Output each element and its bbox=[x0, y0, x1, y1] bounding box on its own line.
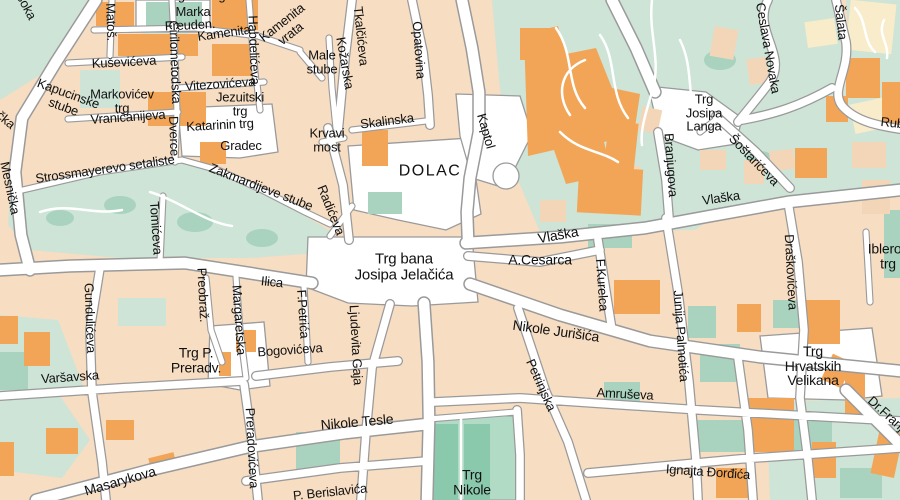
street-label: Kuševićeva bbox=[91, 54, 156, 71]
place-label: Trg Hrvatskih Velikana bbox=[785, 344, 842, 388]
street-label: Rubetićeva bbox=[880, 115, 900, 135]
street-label: Preradovićeva bbox=[243, 407, 261, 488]
street-label: Krvavi most bbox=[310, 126, 345, 153]
street-label: Varšavska bbox=[41, 368, 100, 386]
street-label: Masarykova bbox=[83, 464, 158, 498]
street-label: Opatovina bbox=[410, 21, 427, 79]
street-label: Mesnička bbox=[0, 161, 22, 216]
street-label: Ceslava Novaka bbox=[753, 2, 782, 95]
street-label: F.Petrića bbox=[295, 289, 312, 339]
street-label: Visoka bbox=[9, 0, 39, 22]
street-label: Ignajta Đorđića bbox=[665, 462, 750, 481]
street-label: F.Kurelca bbox=[593, 258, 610, 311]
street-label: Mletačka bbox=[0, 89, 18, 132]
street-label: Male stube bbox=[307, 48, 338, 75]
street-label: Amruševa bbox=[596, 386, 654, 402]
street-label: Vlaška bbox=[701, 189, 740, 208]
street-label: P. Berislavića bbox=[292, 481, 367, 500]
street-label: Skalinska bbox=[359, 111, 414, 131]
street-label: Zakmardijeve stube bbox=[207, 161, 314, 213]
street-label: Margaretska bbox=[230, 285, 248, 356]
street-label: Draškovićeva bbox=[782, 234, 799, 310]
place-label: Trg Josipa Langa bbox=[686, 93, 722, 134]
street-label: Matoš. bbox=[104, 3, 119, 41]
labels-layer: Trg svetogMarkaMatoš.Freuden.KamenitaKam… bbox=[0, 0, 900, 500]
street-label: Jezuitski trg bbox=[216, 90, 264, 117]
street-label: Ljudevita Gaja bbox=[347, 305, 365, 386]
place-label: Gradec bbox=[220, 139, 261, 153]
place-label: Trg svetog bbox=[167, 0, 226, 3]
street-label: Kožarska bbox=[334, 36, 356, 90]
street-label: Vlaška bbox=[537, 224, 580, 245]
street-label: Nikole Tesle bbox=[320, 412, 394, 433]
street-label: Ilica bbox=[260, 274, 283, 290]
street-label: Radićeva bbox=[315, 183, 347, 237]
street-label: Šoštarićeva bbox=[726, 132, 781, 189]
street-label: Ćirilometodska bbox=[167, 20, 183, 104]
place-label: Trg P. Preradv. bbox=[171, 345, 221, 374]
street-label: Kamenita vrata bbox=[257, 1, 316, 55]
street-label: Nikole Jurišića bbox=[512, 318, 600, 345]
street-label: Šalata bbox=[832, 4, 849, 41]
street-label: Dr.Franje bbox=[865, 394, 900, 439]
street-label: Petrinjska bbox=[524, 357, 559, 413]
street-label: Iblerov trg bbox=[868, 241, 900, 270]
street-label: Branjugova bbox=[662, 133, 680, 198]
street-label: Katarinin trg bbox=[186, 116, 254, 133]
street-label: Gundulićeva bbox=[82, 283, 98, 354]
street-label: Kapucinske stube bbox=[31, 76, 102, 124]
street-label: Bogovićeva bbox=[257, 341, 323, 359]
street-label: Kaptol bbox=[475, 112, 498, 150]
street-label: Dverce bbox=[167, 116, 182, 156]
street-label: A.Cesarca bbox=[508, 253, 572, 268]
street-label: Junija Palmotića bbox=[671, 290, 691, 382]
street-label: Strossmayerevo setaliste bbox=[35, 153, 176, 186]
place-label: DOLAC bbox=[399, 164, 462, 181]
place-label: Trg bana Josipa Jelačića bbox=[355, 251, 454, 282]
street-label: Preobraž. bbox=[195, 267, 211, 322]
street-label: Vraničanijeva bbox=[90, 108, 166, 127]
map-canvas[interactable]: Trg svetogMarkaMatoš.Freuden.KamenitaKam… bbox=[0, 0, 900, 500]
place-label: Trg Nikole bbox=[453, 467, 491, 496]
street-label: Tomićeva bbox=[147, 201, 164, 255]
street-label: Tkalčićeva bbox=[351, 6, 371, 67]
